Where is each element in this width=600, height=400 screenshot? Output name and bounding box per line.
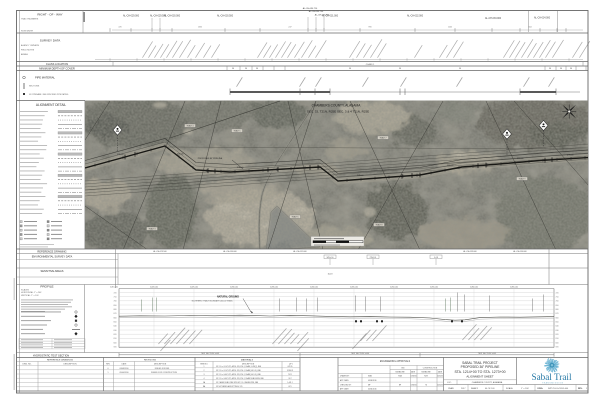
svg-text:CONSTRUCTION: CONSTRUCTION xyxy=(423,368,438,370)
svg-text:PIPE MATERIAL: PIPE MATERIAL xyxy=(35,76,56,80)
svg-text:CLASS LOCATION: CLASS LOCATION xyxy=(46,62,68,66)
svg-text:SHEET:: SHEET: xyxy=(471,388,478,390)
svg-text:610: 610 xyxy=(114,338,117,340)
svg-text:710: 710 xyxy=(556,297,559,299)
svg-text:1245+00: 1245+00 xyxy=(350,286,359,288)
svg-text:690: 690 xyxy=(556,305,559,307)
svg-text:1269+00: 1269+00 xyxy=(517,158,524,160)
svg-text:247: 247 xyxy=(288,26,291,28)
svg-text:STA. 1214+00 TO STA. 1273+00: STA. 1214+00 TO STA. 1273+00 xyxy=(454,370,505,374)
svg-text:ISSUED FOR CONSTRUCTION: ISSUED FOR CONSTRUCTION xyxy=(151,372,178,374)
svg-text:MATERIALS: MATERIALS xyxy=(241,359,254,362)
svg-text:CHAMBERS COUNTY, ALABAMA: CHAMBERS COUNTY, ALABAMA xyxy=(312,103,362,107)
svg-text:1" = 200': 1" = 200' xyxy=(521,388,529,390)
svg-text:TEST SECTION 14-04: TEST SECTION 14-04 xyxy=(351,353,369,355)
svg-text:1215+00: 1215+00 xyxy=(110,286,119,288)
svg-text:1249+00: 1249+00 xyxy=(357,175,364,177)
svg-text:1255+00: 1255+00 xyxy=(430,286,439,288)
svg-text:720: 720 xyxy=(114,292,117,294)
svg-text:ALIGNMENT SHEET: ALIGNMENT SHEET xyxy=(466,375,493,379)
svg-text:MINIMUM DEPTH OF COVER: MINIMUM DEPTH OF COVER xyxy=(39,66,75,70)
svg-text:TRACT 4: TRACT 4 xyxy=(186,125,193,128)
svg-text:AGENCY OWNERS: AGENCY OWNERS xyxy=(21,44,40,47)
svg-text:36: 36 xyxy=(349,68,351,70)
svg-text:1335: 1335 xyxy=(198,26,202,28)
svg-text:AL-CH-031.000: AL-CH-031.000 xyxy=(293,250,306,253)
svg-text:AL-CH-029.500: AL-CH-029.500 xyxy=(153,250,166,253)
svg-text:0: 0 xyxy=(108,368,109,370)
svg-text:DRAWN BY:: DRAWN BY: xyxy=(340,375,350,378)
svg-text:ROW WIDTH: ROW WIDTH xyxy=(21,31,34,33)
svg-text:1,441.1: 1,441.1 xyxy=(287,382,292,384)
svg-text:1260+00: 1260+00 xyxy=(470,286,479,288)
svg-text:36: 36 xyxy=(232,68,234,70)
svg-text:AREAS: AREAS xyxy=(21,53,28,56)
svg-text:FIELD NOTES: FIELD NOTES xyxy=(21,50,35,52)
svg-text:1: 1 xyxy=(204,366,205,368)
svg-text:05/04/16: 05/04/16 xyxy=(437,384,443,386)
svg-text:DESCRIPTION: DESCRIPTION xyxy=(64,364,78,366)
svg-text:36: 36 xyxy=(399,68,401,70)
svg-text:700: 700 xyxy=(556,301,559,303)
svg-text:DESCRIPTION: DESCRIPTION xyxy=(154,364,167,366)
svg-text:CHECKED BY:: CHECKED BY: xyxy=(340,384,352,386)
svg-text:TRACT 6: TRACT 6 xyxy=(291,216,298,219)
svg-text:AL-CH-030.710: AL-CH-030.710 xyxy=(303,7,318,10)
svg-text:670: 670 xyxy=(556,313,559,315)
svg-text:PROPOSED 36" PIPELINE: PROPOSED 36" PIPELINE xyxy=(198,158,223,160)
svg-text:1225+00: 1225+00 xyxy=(190,286,199,288)
svg-text:VERTICAL: 1" = 100': VERTICAL: 1" = 100' xyxy=(21,294,39,297)
svg-text:36: 36 xyxy=(560,68,562,70)
svg-text:ITEM NO.: ITEM NO. xyxy=(200,363,208,365)
svg-text:PROFILE: PROFILE xyxy=(40,285,53,289)
svg-text:630: 630 xyxy=(114,330,117,332)
svg-text:SENSITIVE AREAS: SENSITIVE AREAS xyxy=(41,269,64,273)
svg-text:AL-CH-030.000: AL-CH-030.000 xyxy=(164,15,181,18)
svg-text:670: 670 xyxy=(114,313,117,315)
svg-text:620: 620 xyxy=(114,334,117,336)
svg-text:720: 720 xyxy=(556,292,559,294)
svg-text:SEC. 33, T21N, R25E SEC. 3 & 4: SEC. 33, T21N, R25E SEC. 3 & 4 T21N, R25… xyxy=(307,110,369,114)
svg-text:DATE: DATE xyxy=(122,363,127,366)
svg-text:AL-CH-030.750: AL-CH-030.750 xyxy=(309,10,324,13)
svg-text:SECTIONS: SECTIONS xyxy=(29,86,40,88)
svg-text:610: 610 xyxy=(556,338,559,340)
svg-text:1230+00: 1230+00 xyxy=(230,286,239,288)
svg-text:600: 600 xyxy=(114,342,117,344)
svg-text:1220+00: 1220+00 xyxy=(150,286,159,288)
svg-text:TRACT NUMBERS: TRACT NUMBERS xyxy=(21,18,39,21)
svg-text:HYDROSTATIC TEST SECTION: HYDROSTATIC TEST SECTION xyxy=(33,354,70,357)
svg-text:HORIZONTAL: 1" = 200': HORIZONTAL: 1" = 200' xyxy=(21,291,42,294)
svg-text:SABAL TRAIL PROJECT: SABAL TRAIL PROJECT xyxy=(462,361,498,365)
svg-text:AL-CH-034.000: AL-CH-034.000 xyxy=(534,17,551,20)
svg-text:4: 4 xyxy=(204,378,205,380)
svg-text:ENGINEERING APPROVALS: ENGINEERING APPROVALS xyxy=(380,360,411,363)
svg-text:1226+00: 1226+00 xyxy=(177,153,184,155)
svg-text:660: 660 xyxy=(556,317,559,319)
svg-text:05/04/2016: 05/04/2016 xyxy=(120,372,129,374)
svg-text:NO PIPENAME / SEE SPECIFIED PI: NO PIPENAME / SEE SPECIFIED PIPE RATING xyxy=(29,93,69,96)
svg-text:05/04/16: 05/04/16 xyxy=(437,376,443,378)
svg-text:AL-CH-032.000: AL-CH-032.000 xyxy=(407,15,424,18)
svg-text:590: 590 xyxy=(114,347,117,349)
svg-text:YEAR:: YEAR: xyxy=(448,387,454,390)
svg-text:LOC:: LOC: xyxy=(447,382,452,384)
svg-text:ENVIRONMENTAL SURVEY DATA: ENVIRONMENTAL SURVEY DATA xyxy=(32,255,73,259)
svg-text:620: 620 xyxy=(556,334,559,336)
svg-text:APP. DATE:: APP. DATE: xyxy=(340,388,349,391)
svg-text:TRACT 7: TRACT 7 xyxy=(379,137,386,140)
svg-text:TRACT 9: TRACT 9 xyxy=(518,178,525,181)
svg-text:DWG. NO.: DWG. NO. xyxy=(22,364,32,366)
svg-text:678.15: 678.15 xyxy=(288,366,293,368)
svg-text:APP. DATE:: APP. DATE: xyxy=(340,379,349,382)
svg-text:470: 470 xyxy=(118,26,121,28)
svg-text:CLASS 1: CLASS 1 xyxy=(366,63,375,66)
svg-text:DESCRIPTION: DESCRIPTION xyxy=(242,363,255,365)
svg-text:650: 650 xyxy=(114,322,117,324)
svg-text:700: 700 xyxy=(114,301,117,303)
svg-text:630: 630 xyxy=(556,330,559,332)
svg-text:RJW: RJW xyxy=(424,376,428,378)
svg-text:1240+00: 1240+00 xyxy=(310,286,319,288)
svg-text:MF: MF xyxy=(368,384,370,386)
svg-text:600: 600 xyxy=(556,342,559,344)
svg-text:680: 680 xyxy=(556,309,559,311)
svg-text:1219+00: 1219+00 xyxy=(117,154,124,156)
svg-text:640: 640 xyxy=(114,326,117,328)
svg-text:1: 1 xyxy=(108,372,109,374)
svg-text:67.9: 67.9 xyxy=(288,386,291,388)
svg-text:564: 564 xyxy=(528,26,531,28)
svg-text:93.7: 93.7 xyxy=(288,378,291,380)
svg-text:36: 36 xyxy=(549,68,551,70)
svg-text:36: 36 xyxy=(245,68,247,70)
svg-text:1265+00: 1265+00 xyxy=(510,286,519,288)
svg-text:AL-CH-034.000: AL-CH-034.000 xyxy=(513,250,526,253)
svg-text:36: 36 xyxy=(459,68,461,70)
svg-text:1250+00: 1250+00 xyxy=(390,286,399,288)
svg-text:03/08/2016: 03/08/2016 xyxy=(368,380,377,382)
svg-text:Sabal Trail: Sabal Trail xyxy=(531,372,572,382)
svg-text:TRACT 8: TRACT 8 xyxy=(375,224,382,227)
svg-text:SWT-PL-DG-70161-044: SWT-PL-DG-70161-044 xyxy=(548,388,568,390)
svg-text:TRACT 3: TRACT 3 xyxy=(148,228,155,231)
svg-text:CHAMBERS COUNTY, ALABAMA: CHAMBERS COUNTY, ALABAMA xyxy=(472,381,503,384)
svg-text:44 OF 140: 44 OF 140 xyxy=(485,388,495,390)
svg-text:1234+00: 1234+00 xyxy=(237,167,244,169)
svg-text:747.1: 747.1 xyxy=(288,374,292,376)
svg-text:TRACT 5: TRACT 5 xyxy=(233,130,240,133)
svg-text:16-18: 16-18 xyxy=(328,274,333,276)
svg-text:SCALE:: SCALE: xyxy=(506,387,514,390)
svg-text:36: 36 xyxy=(256,68,258,70)
svg-text:ALIGNMENT DETAIL: ALIGNMENT DETAIL xyxy=(36,103,67,107)
svg-text:MF: MF xyxy=(399,384,401,386)
svg-text:650: 650 xyxy=(556,322,559,324)
svg-text:AL-CH-030.800: AL-CH-030.800 xyxy=(315,14,330,17)
svg-text:640: 640 xyxy=(556,326,559,328)
svg-text:AL-CH-029.000: AL-CH-029.000 xyxy=(123,15,140,18)
svg-text:590: 590 xyxy=(556,347,559,349)
svg-text:680: 680 xyxy=(114,309,117,311)
svg-text:PW-101: PW-101 xyxy=(370,257,376,259)
svg-text:AL-CH-030.500: AL-CH-030.500 xyxy=(217,15,234,18)
svg-text:1205: 1205 xyxy=(448,26,452,28)
svg-text:05/04/2016: 05/04/2016 xyxy=(368,389,377,391)
svg-text:DWG:: DWG: xyxy=(538,388,544,390)
svg-text:T R A N S M I S S I O N: T R A N S M I S S I O N xyxy=(542,381,564,384)
svg-text:1235+00: 1235+00 xyxy=(270,286,279,288)
svg-text:AL-CH-030.000: AL-CH-030.000 xyxy=(223,250,236,253)
svg-text:710: 710 xyxy=(114,297,117,299)
svg-text:ISSUED FOR BID: ISSUED FOR BID xyxy=(155,368,170,370)
svg-text:2: 2 xyxy=(204,370,205,372)
svg-text:QTY.: QTY. xyxy=(289,363,293,365)
svg-text:36: 36 xyxy=(570,68,572,70)
svg-text:PROPOSED 36" PIPELINE: PROPOSED 36" PIPELINE xyxy=(461,365,500,369)
svg-text:1260+00: 1260+00 xyxy=(447,165,454,167)
svg-text:SOUTHERN / TRACT BOUNDARY (100: SOUTHERN / TRACT BOUNDARY (100.00' WIDE) xyxy=(192,300,233,303)
svg-text:SURVEY DATA: SURVEY DATA xyxy=(40,39,61,43)
svg-text:REFERENCE DRAWINGS: REFERENCE DRAWINGS xyxy=(47,359,74,362)
svg-text:RIGHT - OF - WAY: RIGHT - OF - WAY xyxy=(37,13,62,17)
svg-text:REV:: REV: xyxy=(578,388,583,390)
svg-text:NATURAL GROUND: NATURAL GROUND xyxy=(217,296,239,299)
svg-text:690: 690 xyxy=(114,305,117,307)
svg-text:W16+50: W16+50 xyxy=(327,257,334,259)
svg-text:03/08/2016: 03/08/2016 xyxy=(120,368,129,370)
svg-text:660: 660 xyxy=(114,317,117,319)
svg-text:REFERENCE DRAWING: REFERENCE DRAWING xyxy=(37,249,66,253)
svg-text:990: 990 xyxy=(368,26,371,28)
svg-text:AL-CH-033.000: AL-CH-033.000 xyxy=(463,250,476,253)
svg-text:TEST SECTION 14-05: TEST SECTION 14-05 xyxy=(478,353,496,355)
svg-text:3,286.74: 3,286.74 xyxy=(287,370,293,372)
svg-text:03/08/16: 03/08/16 xyxy=(411,376,417,378)
svg-text:03/08/16: 03/08/16 xyxy=(411,384,417,386)
svg-text:TEST SECTION 14-03: TEST SECTION 14-03 xyxy=(201,353,219,355)
svg-text:3: 3 xyxy=(204,374,205,376)
svg-text:SCALES: SCALES xyxy=(21,289,30,292)
svg-text:S-18: S-18 xyxy=(434,257,438,259)
svg-text:AL-CH-033.000: AL-CH-033.000 xyxy=(485,17,502,20)
svg-text:1275+00: 1275+00 xyxy=(567,154,574,156)
